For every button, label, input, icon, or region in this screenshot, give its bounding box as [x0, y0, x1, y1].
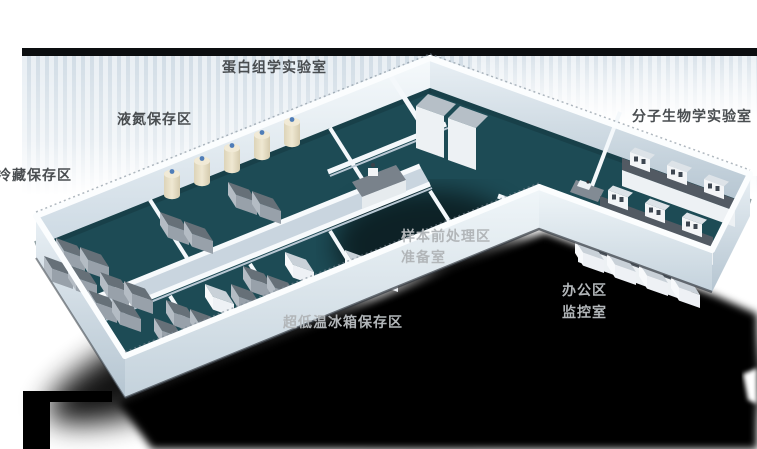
room-label-prep-room: 准备室 [401, 250, 446, 267]
ln2-tank-icon [284, 117, 300, 147]
room-label-ulf-freezer-storage: 超低温冰箱保存区 [283, 315, 403, 332]
floorplan-3d-render [0, 0, 757, 449]
banner-black-band [22, 48, 757, 56]
room-label-office: 办公区 [562, 283, 607, 300]
room-label-ln2-storage: 液氮保存区 [117, 112, 192, 129]
room-label-sample-pretreatment: 样本前处理区 [401, 229, 491, 246]
room-label-cold-storage: 冷藏保存区 [0, 168, 72, 185]
facility-floorplan-screenshot: 蛋白组学实验室 液氮保存区 冷藏保存区 分子生物学实验室 样本前处理区 准备室 … [0, 0, 757, 449]
ln2-tank-icon [254, 130, 270, 160]
ln2-tank-icon [194, 156, 210, 186]
ln2-tank-icon [164, 169, 180, 199]
room-label-monitor-room: 监控室 [562, 305, 607, 322]
room-label-molecular-lab: 分子生物学实验室 [632, 109, 752, 126]
ln2-tank-icon [224, 143, 240, 173]
room-label-proteomics-lab: 蛋白组学实验室 [222, 60, 327, 77]
